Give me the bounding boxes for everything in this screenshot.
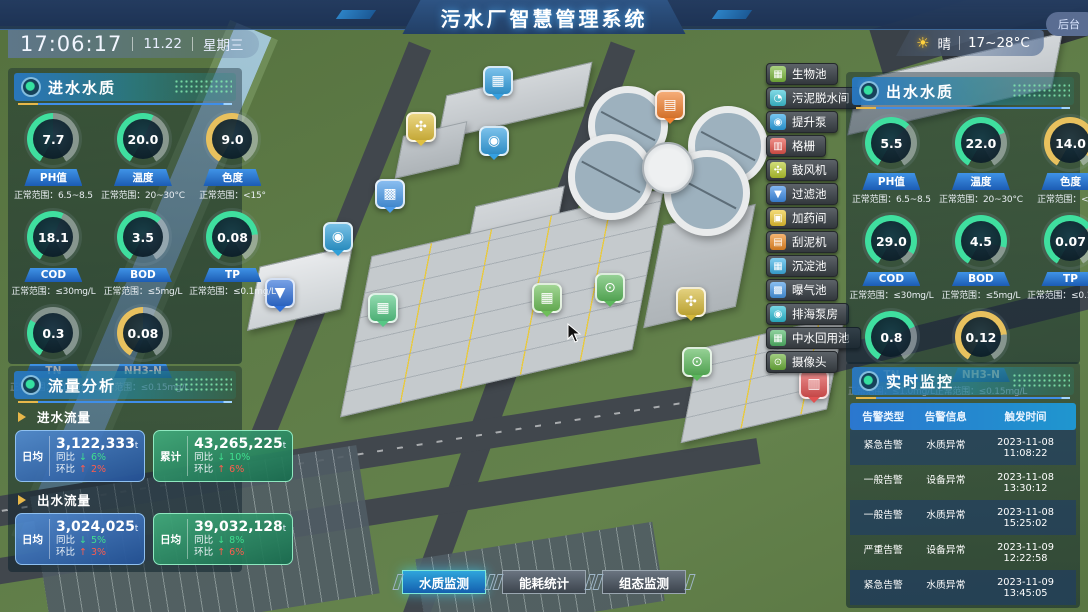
alarm-type: 紧急告警 (852, 437, 915, 459)
facility-icon: ▦ (770, 258, 786, 274)
trend-label: 同比 (194, 452, 213, 464)
gauge-range: 正常范围：20~30°C (97, 188, 189, 201)
map-marker-排海泵房[interactable]: ◉ (323, 222, 353, 252)
trend-arrow-icon: ↑ (217, 464, 225, 476)
flow-value: 3,024,025t (56, 519, 138, 535)
flow-cards-row: 日均3,024,025t同比↓5%环比↑3%日均39,032,128t同比↓8%… (8, 513, 242, 565)
facility-icon: ▩ (770, 282, 786, 298)
flow-cards-row: 日均3,122,333t同比↓6%环比↑2%累计43,265,225t同比↓10… (8, 430, 242, 482)
map-marker-生物池[interactable]: ▦ (532, 283, 562, 313)
map-marker-摄像头[interactable]: ⊙ (595, 273, 625, 303)
arrow-icon (18, 412, 31, 422)
trend-label: 同比 (194, 535, 213, 547)
date-label: 11.22 (143, 36, 182, 52)
flow-value: 3,122,333t (56, 436, 138, 452)
trend-value: 5% (91, 535, 106, 547)
title-decoration (712, 10, 752, 19)
facility-label: 中水回用池 (792, 330, 850, 346)
gauge-ring: 7.7 (27, 113, 79, 165)
flow-group-label: 出水流量 (37, 490, 91, 509)
bottom-tab-bar: 水质监测能耗统计组态监测 (402, 570, 686, 594)
flow-analysis-panel: 流量分析 进水流量日均3,122,333t同比↓6%环比↑2%累计43,265,… (8, 366, 242, 572)
map-marker-曝气池[interactable]: ▩ (375, 179, 405, 209)
facility-label: 鼓风机 (792, 162, 827, 178)
alarm-info: 水质异常 (915, 437, 978, 459)
trend-arrow-icon: ↑ (217, 547, 225, 559)
gauge-PH值: 7.7PH值正常范围：6.5~8.5 (10, 113, 97, 201)
trend-arrow-icon: ↓ (79, 452, 87, 464)
alarm-info: 设备异常 (915, 472, 978, 494)
facility-label: 沉淀池 (792, 258, 827, 274)
gauge-range: 正常范围：<15° (189, 188, 276, 201)
gauge-value: 0.8 (871, 317, 911, 357)
gauge-label: PH值 (862, 173, 920, 190)
trend-label: 同比 (56, 535, 75, 547)
gauge-value: 22.0 (961, 123, 1001, 163)
facility-icon: ▥ (770, 138, 786, 154)
gauge-range: 正常范围：≤5mg/L (97, 284, 189, 297)
trend-label: 环比 (56, 547, 75, 559)
gauge-ring: 18.1 (27, 211, 79, 263)
facility-label: 曝气池 (792, 282, 827, 298)
facility-button-加药间[interactable]: ▣加药间 (766, 207, 838, 229)
trend-value: 8% (229, 535, 244, 547)
divider (132, 37, 133, 51)
facility-label: 加药间 (792, 210, 827, 226)
gauge-label: 色度 (203, 169, 261, 186)
flow-card-body: 43,265,225t同比↓10%环比↑6% (187, 436, 286, 476)
trend-arrow-icon: ↓ (217, 535, 225, 547)
gauge-label: TP (1041, 272, 1088, 286)
facility-icon: ✣ (770, 162, 786, 178)
gauge-value: 14.0 (1050, 123, 1088, 163)
alarm-row[interactable]: 严重告警设备异常2023-11-09 12:22:58 (850, 535, 1076, 570)
flow-card-tag: 日均 (22, 532, 43, 547)
central-hub-building (642, 142, 694, 194)
gauge-色度: 9.0色度正常范围：<15° (189, 113, 276, 201)
gauge-COD: 18.1COD正常范围：≤30mg/L (10, 211, 97, 297)
outlet-quality-panel: 出水水质 5.5PH值正常范围：6.5~8.522.0温度正常范围：20~30°… (846, 72, 1080, 364)
flow-card[interactable]: 日均39,032,128t同比↓8%环比↑6% (153, 513, 293, 565)
gauge-label: COD (862, 272, 920, 286)
panel-title: 实时监控 (886, 371, 954, 392)
flow-trend: 环比↑3% (56, 547, 138, 559)
flow-trend: 环比↑6% (194, 547, 286, 559)
map-marker-摄像头[interactable]: ⊙ (682, 347, 712, 377)
facility-label: 提升泵 (792, 114, 827, 130)
flow-unit: t (135, 441, 138, 451)
gauge-value: 0.3 (33, 313, 73, 353)
trend-arrow-icon: ↓ (217, 452, 225, 464)
map-marker-沉淀池[interactable]: ▦ (483, 66, 513, 96)
facility-label: 过滤池 (792, 186, 827, 202)
datetime-display: 17:06:17 11.22 星期三 (8, 30, 259, 58)
gauge-ring: 0.07 (1044, 215, 1088, 267)
gauge-label: 色度 (1041, 173, 1088, 190)
gauge-TP: 0.08TP正常范围：≤0.1mg/L (189, 211, 276, 297)
alarm-type: 紧急告警 (852, 577, 915, 599)
map-marker-鼓风机[interactable]: ✣ (676, 287, 706, 317)
gauge-range: 正常范围：≤0.1mg/L (1027, 288, 1088, 301)
flow-card[interactable]: 累计43,265,225t同比↓10%环比↑6% (153, 430, 293, 482)
alarm-type: 严重告警 (852, 542, 915, 564)
gauge-value: 5.5 (871, 123, 911, 163)
gauge-value: 20.0 (123, 119, 163, 159)
gauge-range: 正常范围：≤0.1mg/L (189, 284, 276, 297)
flow-group-title: 进水流量 (18, 407, 242, 426)
page-title: 污水厂智慧管理系统 (441, 3, 648, 32)
gauge-value: 0.07 (1050, 221, 1088, 261)
alarm-table-header: 告警类型告警信息触发时间 (850, 403, 1076, 430)
panel-header: 实时监控 (852, 367, 1074, 395)
flow-card-body: 39,032,128t同比↓8%环比↑6% (187, 519, 286, 559)
gauge-ring: 3.5 (117, 211, 169, 263)
alarm-time: 2023-11-08 15:25:02 (977, 507, 1074, 529)
alarm-column-header: 告警类型 (852, 409, 915, 424)
facility-icon: ◔ (770, 90, 786, 106)
facility-button-提升泵[interactable]: ◉提升泵 (766, 111, 838, 133)
gauge-TP: 0.07TP正常范围：≤0.1mg/L (1027, 215, 1088, 301)
title-decoration (336, 10, 376, 19)
flow-card-tag: 累计 (160, 449, 181, 464)
facility-icon: ▤ (770, 234, 786, 250)
flow-value: 43,265,225t (194, 436, 286, 452)
trend-value: 10% (229, 452, 250, 464)
gauge-label: TP (203, 268, 261, 282)
panel-title: 进水水质 (48, 77, 116, 98)
gauge-ring: 14.0 (1044, 117, 1088, 169)
inlet-quality-panel: 进水水质 7.7PH值正常范围：6.5~8.520.0温度正常范围：20~30°… (8, 68, 242, 364)
gauge-ring: 22.0 (955, 117, 1007, 169)
clarifier-tank (568, 134, 654, 220)
gauge-value: 0.08 (123, 313, 163, 353)
panel-header-icon (859, 81, 879, 101)
flow-card-tag: 日均 (22, 449, 43, 464)
weather-label: 晴 (937, 33, 951, 53)
facility-icon: ◉ (770, 114, 786, 130)
alarm-time: 2023-11-09 12:22:58 (977, 542, 1074, 564)
gauge-温度: 20.0温度正常范围：20~30°C (97, 113, 189, 201)
facility-label: 生物池 (792, 66, 827, 82)
facility-icon: ▦ (770, 330, 786, 346)
tab-组态监测[interactable]: 组态监测 (602, 570, 686, 594)
gauge-色度: 14.0色度正常范围：<15° (1027, 117, 1088, 205)
trend-arrow-icon: ↑ (79, 547, 87, 559)
gauge-range: 正常范围：≤30mg/L (10, 284, 97, 297)
alarm-type: 一般告警 (852, 472, 915, 494)
trend-arrow-icon: ↑ (79, 464, 87, 476)
tab-能耗统计[interactable]: 能耗统计 (502, 570, 586, 594)
top-bar: 污水厂智慧管理系统 (0, 0, 1088, 30)
panel-header: 进水水质 (14, 73, 236, 101)
gauge-BOD: 4.5BOD正常范围：≤5mg/L (935, 215, 1027, 301)
gauge-ring: 0.08 (206, 211, 258, 263)
trend-value: 3% (91, 547, 106, 559)
panel-header: 流量分析 (14, 371, 236, 399)
flow-trend: 同比↓8% (194, 535, 286, 547)
alarm-row[interactable]: 一般告警设备异常2023-11-08 13:30:12 (850, 465, 1076, 500)
flow-trend: 同比↓10% (194, 452, 286, 464)
map-marker-鼓风机[interactable]: ✣ (406, 112, 436, 142)
gauge-ring: 0.8 (865, 311, 917, 363)
flow-trend: 环比↑2% (56, 464, 138, 476)
trend-value: 6% (229, 464, 244, 476)
panel-header: 出水水质 (852, 77, 1074, 105)
gauge-ring: 9.0 (206, 113, 258, 165)
gauge-value: 0.12 (961, 317, 1001, 357)
temp-range: 17~28°C (968, 35, 1030, 51)
alarm-time: 2023-11-09 13:45:05 (977, 577, 1074, 599)
flow-trend: 同比↓5% (56, 535, 138, 547)
gauge-value: 3.5 (123, 217, 163, 257)
realtime-monitor-panel: 实时监控 告警类型告警信息触发时间 紧急告警水质异常2023-11-08 11:… (846, 362, 1080, 608)
alarm-info: 设备异常 (915, 542, 978, 564)
divider (192, 37, 193, 51)
weekday-label: 星期三 (203, 34, 244, 54)
facility-button-曝气池[interactable]: ▩曝气池 (766, 279, 838, 301)
flow-trend: 同比↓6% (56, 452, 138, 464)
gauge-label: PH值 (24, 169, 82, 186)
trend-label: 环比 (194, 464, 213, 476)
alarm-time: 2023-11-08 13:30:12 (977, 472, 1074, 494)
map-marker-中水回用池[interactable]: ▦ (368, 293, 398, 323)
facility-button-排海泵房[interactable]: ◉排海泵房 (766, 303, 849, 325)
gauge-ring: 4.5 (955, 215, 1007, 267)
alarm-time: 2023-11-08 11:08:22 (977, 437, 1074, 459)
gauge-ring: 0.12 (955, 311, 1007, 363)
clock-time: 17:06:17 (20, 32, 122, 56)
flow-group-title: 出水流量 (18, 490, 242, 509)
gauge-label: COD (24, 268, 82, 282)
facility-label: 刮泥机 (792, 234, 827, 250)
flow-value: 39,032,128t (194, 519, 286, 535)
facility-button-生物池[interactable]: ▦生物池 (766, 63, 838, 85)
alarm-row[interactable]: 紧急告警水质异常2023-11-09 13:45:05 (850, 570, 1076, 605)
facility-label: 排海泵房 (792, 306, 838, 322)
alarm-info: 水质异常 (915, 577, 978, 599)
gauge-range: 正常范围：20~30°C (935, 192, 1027, 205)
panel-header-icon (21, 77, 41, 97)
gauge-value: 0.08 (212, 217, 252, 257)
alarm-row[interactable]: 紧急告警水质异常2023-11-08 11:08:22 (850, 430, 1076, 465)
flow-card[interactable]: 日均3,024,025t同比↓5%环比↑3% (15, 513, 145, 565)
facility-button-鼓风机[interactable]: ✣鼓风机 (766, 159, 838, 181)
panel-title: 流量分析 (48, 375, 116, 396)
backend-button[interactable]: 后台 (1046, 12, 1088, 36)
gauge-value: 9.0 (212, 119, 252, 159)
trend-value: 6% (91, 452, 106, 464)
facility-button-刮泥机[interactable]: ▤刮泥机 (766, 231, 838, 253)
gauge-value: 18.1 (33, 217, 73, 257)
facility-button-格栅[interactable]: ▥格栅 (766, 135, 826, 157)
sun-icon: ☀ (916, 34, 929, 52)
tab-水质监测[interactable]: 水质监测 (402, 570, 486, 594)
trend-value: 6% (229, 547, 244, 559)
panel-header-icon (859, 371, 879, 391)
panel-header-icon (21, 375, 41, 395)
alarm-row[interactable]: 一般告警设备异常2023-11-10 11:05:33 (850, 605, 1076, 612)
alarm-info: 水质异常 (915, 507, 978, 529)
trend-label: 同比 (56, 452, 75, 464)
gauge-ring: 0.3 (27, 307, 79, 359)
trend-arrow-icon: ↓ (79, 535, 87, 547)
weather-display: ☀ 晴 17~28°C (896, 30, 1044, 56)
gauge-COD: 29.0COD正常范围：≤30mg/L (848, 215, 935, 301)
flow-card-tag: 日均 (160, 532, 181, 547)
alarm-column-header: 触发时间 (977, 409, 1074, 424)
gauge-range: 正常范围：<15° (1027, 192, 1088, 205)
flow-trend: 环比↑6% (194, 464, 286, 476)
flow-group-label: 进水流量 (37, 407, 91, 426)
gauge-ring: 29.0 (865, 215, 917, 267)
gauge-温度: 22.0温度正常范围：20~30°C (935, 117, 1027, 205)
title-banner: 污水厂智慧管理系统 (403, 0, 686, 34)
gauge-label: BOD (952, 272, 1010, 286)
alarm-type: 一般告警 (852, 507, 915, 529)
alarm-column-header: 告警信息 (915, 409, 978, 424)
gauge-value: 4.5 (961, 221, 1001, 261)
facility-button-过滤池[interactable]: ▼过滤池 (766, 183, 838, 205)
flow-card[interactable]: 日均3,122,333t同比↓6%环比↑2% (15, 430, 145, 482)
gauge-BOD: 3.5BOD正常范围：≤5mg/L (97, 211, 189, 297)
alarm-row[interactable]: 一般告警水质异常2023-11-08 15:25:02 (850, 500, 1076, 535)
gauge-label: BOD (114, 268, 172, 282)
flow-unit: t (283, 441, 286, 451)
trend-value: 2% (91, 464, 106, 476)
gauge-range: 正常范围：6.5~8.5 (848, 192, 935, 205)
flow-card-body: 3,122,333t同比↓6%环比↑2% (49, 436, 138, 476)
gauge-value: 29.0 (871, 221, 911, 261)
gauge-ring: 5.5 (865, 117, 917, 169)
gauge-ring: 0.08 (117, 307, 169, 359)
flow-unit: t (283, 524, 286, 534)
facility-icon: ▼ (770, 186, 786, 202)
panel-title: 出水水质 (886, 81, 954, 102)
flow-card-body: 3,024,025t同比↓5%环比↑3% (49, 519, 138, 559)
map-marker-提升泵[interactable]: ◉ (479, 126, 509, 156)
trend-label: 环比 (56, 464, 75, 476)
facility-icon: ▦ (770, 66, 786, 82)
facility-icon: ▣ (770, 210, 786, 226)
map-marker-刮泥机[interactable]: ▤ (655, 90, 685, 120)
facility-label: 污泥脱水间 (792, 90, 850, 106)
gauge-label: 温度 (952, 173, 1010, 190)
gauge-value: 7.7 (33, 119, 73, 159)
arrow-icon (18, 495, 31, 505)
gauge-range: 正常范围：≤5mg/L (935, 288, 1027, 301)
gauge-range: 正常范围：≤30mg/L (848, 288, 935, 301)
divider (959, 36, 960, 50)
facility-label: 格栅 (792, 138, 815, 154)
gauge-PH值: 5.5PH值正常范围：6.5~8.5 (848, 117, 935, 205)
facility-icon: ⊙ (770, 354, 786, 370)
trend-label: 环比 (194, 547, 213, 559)
gauge-label: 温度 (114, 169, 172, 186)
gauge-range: 正常范围：6.5~8.5 (10, 188, 97, 201)
gauge-ring: 20.0 (117, 113, 169, 165)
flow-unit: t (135, 524, 138, 534)
facility-button-摄像头[interactable]: ⊙摄像头 (766, 351, 838, 373)
facility-label: 摄像头 (792, 354, 827, 370)
facility-icon: ◉ (770, 306, 786, 322)
facility-button-沉淀池[interactable]: ▦沉淀池 (766, 255, 838, 277)
